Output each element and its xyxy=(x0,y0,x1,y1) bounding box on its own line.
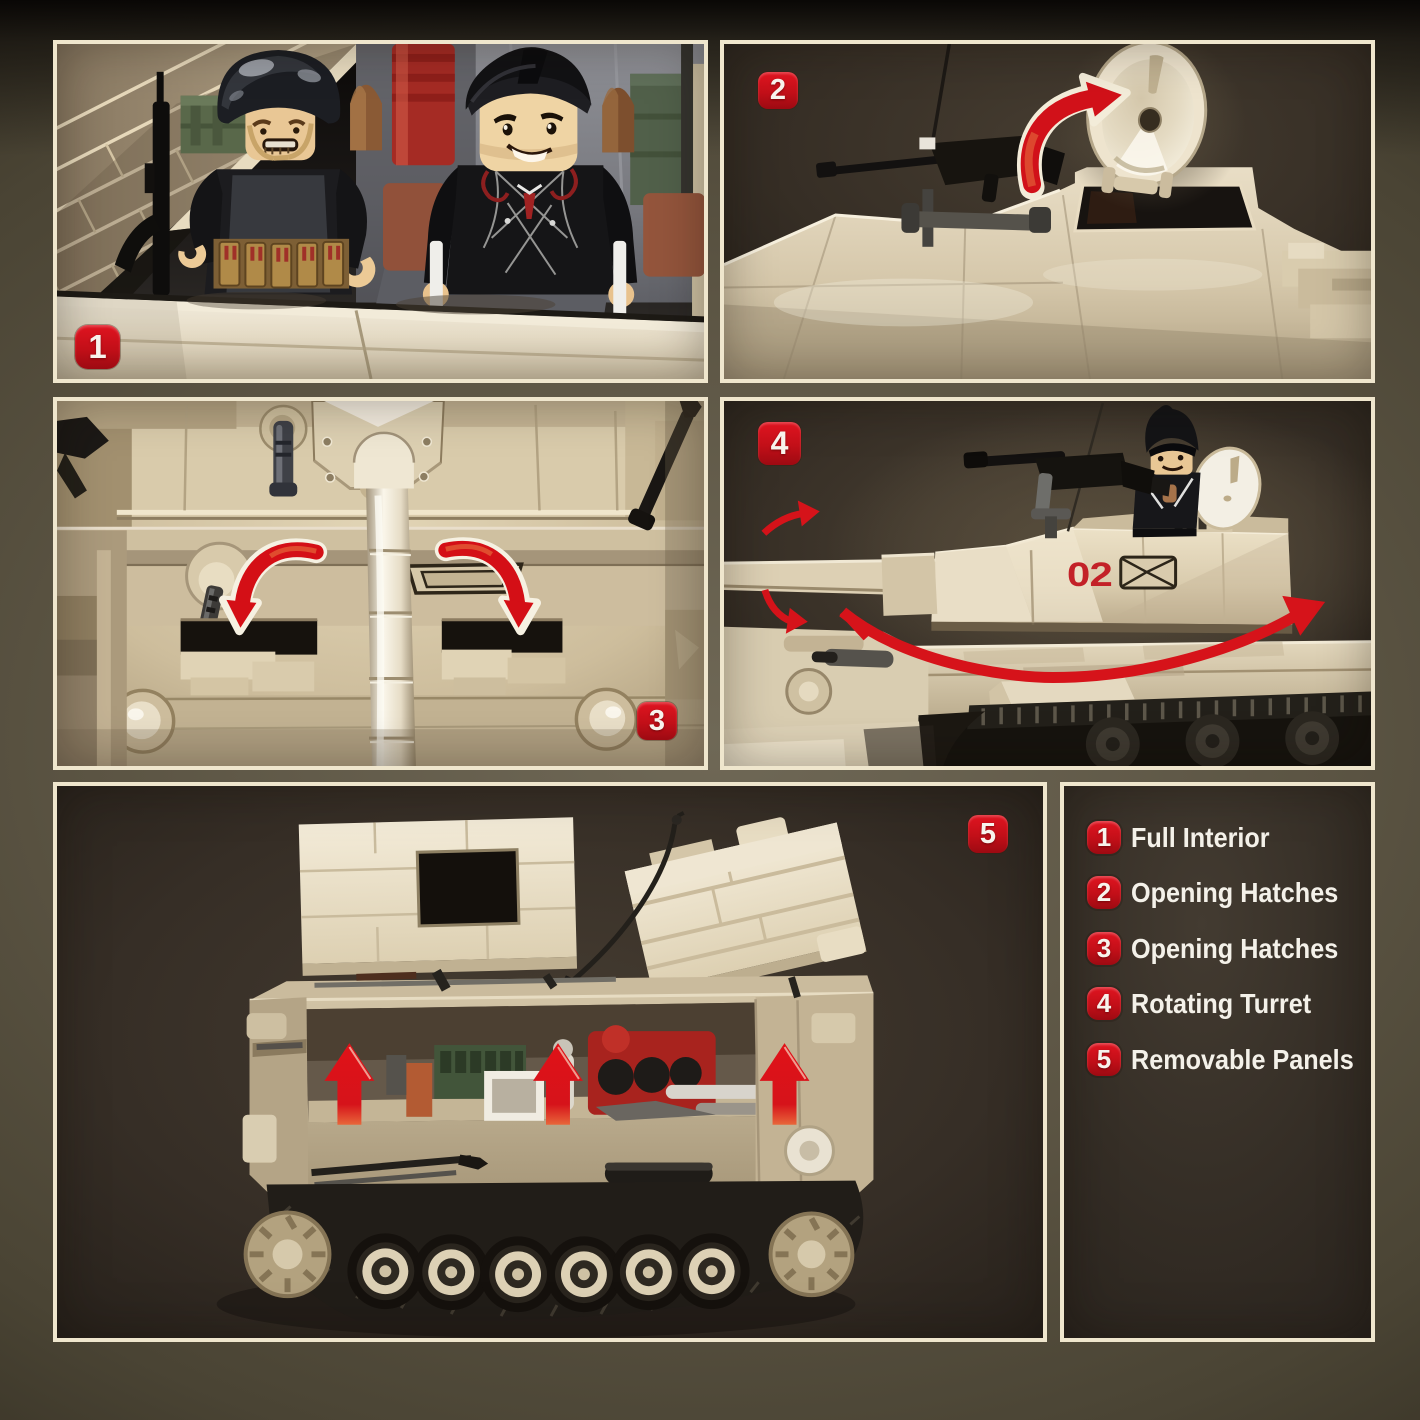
svg-text:02: 02 xyxy=(1067,556,1113,595)
